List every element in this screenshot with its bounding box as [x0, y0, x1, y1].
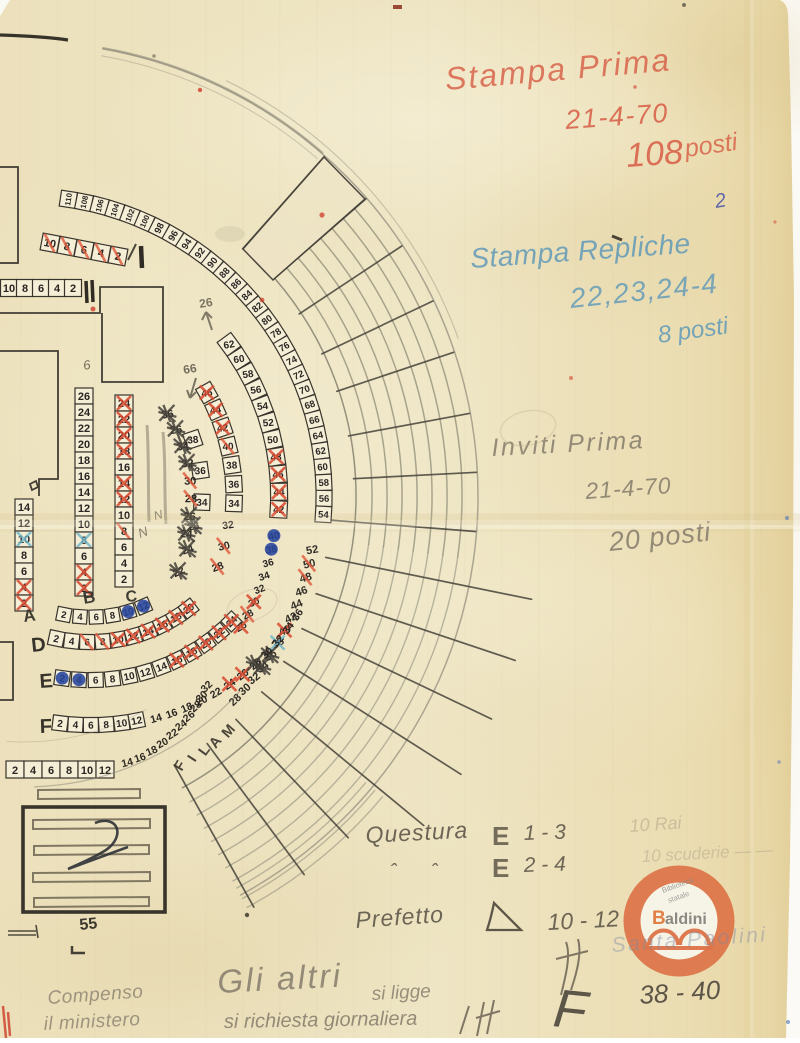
svg-text:52: 52: [305, 543, 319, 557]
svg-text:6: 6: [93, 612, 99, 623]
svg-text:38 - 40: 38 - 40: [638, 974, 721, 1010]
svg-text:si richiesta giornaliera: si richiesta giornaliera: [224, 1008, 418, 1033]
svg-text:58: 58: [318, 478, 329, 489]
svg-text:6: 6: [21, 566, 27, 578]
svg-text:66: 66: [182, 361, 198, 377]
svg-text:24: 24: [78, 407, 91, 419]
svg-text:34: 34: [196, 498, 208, 509]
svg-text:26: 26: [78, 391, 90, 403]
svg-text:18: 18: [78, 455, 90, 467]
svg-text:2: 2: [70, 283, 76, 295]
svg-text:Gli altri: Gli altri: [216, 956, 343, 1000]
svg-text:B: B: [652, 908, 666, 929]
svg-text:6: 6: [38, 283, 44, 295]
svg-text:22: 22: [78, 423, 90, 435]
svg-text:108: 108: [625, 133, 684, 175]
svg-text:60: 60: [233, 354, 246, 367]
svg-text:6: 6: [48, 765, 54, 777]
svg-text:55: 55: [79, 915, 99, 934]
svg-text:52: 52: [262, 418, 274, 430]
svg-text:36: 36: [194, 466, 206, 477]
svg-text:F: F: [39, 716, 52, 738]
svg-text:6: 6: [81, 551, 87, 563]
svg-text:10 Rai: 10 Rai: [629, 812, 683, 836]
svg-text:6: 6: [88, 721, 94, 732]
svg-text:6: 6: [93, 675, 99, 686]
svg-text:56: 56: [319, 494, 330, 505]
svg-text:2: 2: [12, 765, 18, 777]
svg-text:4: 4: [72, 720, 79, 731]
svg-text:Questura: Questura: [365, 817, 469, 848]
svg-text:4: 4: [30, 765, 37, 777]
svg-text:110: 110: [63, 192, 74, 206]
svg-text:E: E: [492, 821, 509, 851]
svg-text:8: 8: [22, 283, 28, 295]
svg-text:58: 58: [242, 369, 255, 382]
svg-text:1 - 3: 1 - 3: [523, 821, 566, 845]
svg-text:8: 8: [21, 550, 27, 562]
svg-text:34: 34: [228, 499, 240, 510]
svg-text:54: 54: [257, 401, 270, 413]
svg-text:14: 14: [78, 487, 91, 499]
svg-text:14: 14: [18, 502, 31, 514]
svg-text:aldini: aldini: [665, 911, 707, 928]
svg-text:50: 50: [267, 435, 279, 447]
svg-text:12: 12: [78, 503, 90, 515]
svg-text:60: 60: [317, 462, 329, 474]
svg-text:2 - 4: 2 - 4: [522, 853, 566, 877]
svg-text:8: 8: [66, 765, 72, 777]
svg-text:si ligge: si ligge: [371, 981, 431, 1005]
svg-text:E: E: [492, 853, 509, 883]
svg-text:56: 56: [250, 385, 263, 397]
svg-text:10: 10: [81, 765, 93, 777]
svg-text:62: 62: [315, 446, 327, 458]
svg-text:2: 2: [121, 574, 127, 586]
svg-text:26: 26: [198, 295, 214, 311]
svg-text:16: 16: [78, 471, 90, 483]
svg-text:D: D: [30, 634, 47, 657]
svg-text:38: 38: [226, 460, 238, 471]
svg-text:20: 20: [78, 439, 90, 451]
svg-text:10: 10: [3, 283, 15, 295]
svg-text:4: 4: [54, 283, 61, 295]
svg-text:36: 36: [228, 480, 240, 491]
svg-text:10 - 12: 10 - 12: [547, 905, 620, 935]
svg-text:4: 4: [121, 558, 128, 570]
svg-text:A: A: [22, 605, 37, 626]
svg-text:6: 6: [121, 542, 127, 554]
svg-text:E: E: [39, 670, 54, 693]
svg-text:16: 16: [118, 462, 130, 474]
